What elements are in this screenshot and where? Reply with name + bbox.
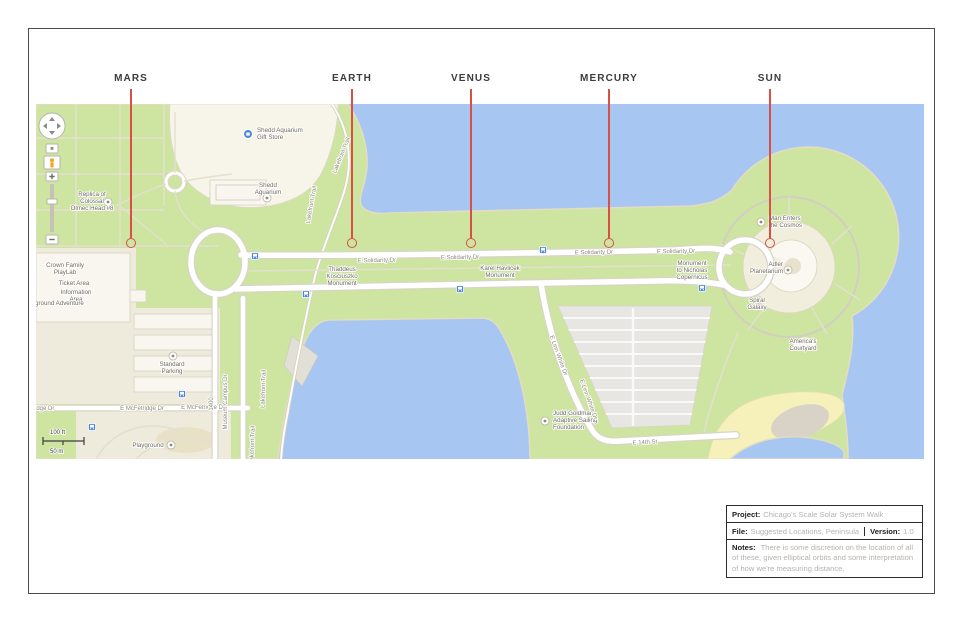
poi-icon <box>757 218 765 226</box>
poi-icon <box>169 352 177 360</box>
map-label: idge Dr <box>36 406 54 412</box>
map-label: Playground <box>132 442 164 449</box>
poi-icon <box>541 417 549 425</box>
file-version-row: File: Suggested Locations, Peninsula Ver… <box>727 523 922 540</box>
map-label: Ticket Area <box>59 280 90 287</box>
notes-row: Notes: There is some discretion on the l… <box>727 540 922 577</box>
project-label: Project: <box>732 510 760 519</box>
notes-label: Notes: <box>732 543 756 552</box>
title-block: Project: Chicago's Scale Solar System Wa… <box>726 505 923 578</box>
bus-stop-icon <box>699 285 706 292</box>
bus-stop-icon <box>540 247 547 254</box>
map-label: SpiralGalaxy <box>747 297 767 311</box>
map-label: 1400 <box>209 397 215 411</box>
bus-stop-icon <box>89 424 96 431</box>
map-label: E McFetridge Dr <box>181 405 225 411</box>
pan-control[interactable] <box>39 113 65 139</box>
pegman-icon[interactable] <box>50 158 54 167</box>
poi-icon <box>167 441 175 449</box>
file-value: Suggested Locations, Peninsula <box>751 527 860 536</box>
map-label: E Solidarity Dr <box>657 249 695 256</box>
project-value: Chicago's Scale Solar System Walk <box>763 510 883 519</box>
bus-stop-icon <box>457 286 464 293</box>
map-label: E Solidarity Dr <box>575 250 613 257</box>
map-label: Karel HavlicekMonument <box>480 265 520 279</box>
map-screenshot: 100 ft 50 m Shedd AquariumGift StoreShed… <box>36 104 924 459</box>
scale-ft-label: 100 ft <box>50 430 65 436</box>
map-label: America'sCourtyard <box>789 338 817 352</box>
version-cell: Version: 1.0 <box>864 527 936 536</box>
zoom-slider-handle[interactable] <box>47 199 57 204</box>
bus-stop-icon <box>252 253 259 260</box>
notes-value: There is some discretion on the location… <box>732 543 913 573</box>
scale-m-label: 50 m <box>50 449 63 455</box>
map-label: ThaddeusKosciuszkoMonument <box>326 266 358 287</box>
map-label: StandardParking <box>159 361 185 375</box>
map-label: Monumentto NicholasCopernicus <box>676 260 707 281</box>
project-row: Project: Chicago's Scale Solar System Wa… <box>727 506 922 523</box>
map-label: Lakefront Trail <box>249 426 256 459</box>
map-label: E Solidarity Dr <box>358 258 396 265</box>
map-canvas[interactable]: 100 ft 50 m Shedd AquariumGift StoreShed… <box>36 104 924 459</box>
map-label: E McFetridge Dr <box>120 406 164 412</box>
bus-stop-icon <box>179 391 186 398</box>
version-value: 1.0 <box>903 527 914 536</box>
map-label: Museum Campus Dr <box>223 374 229 429</box>
file-label: File: <box>732 527 748 536</box>
map-label: Man Entersthe Cosmos <box>769 215 802 229</box>
map-label: ground Adventure <box>36 300 84 307</box>
bus-stop-icon <box>303 291 310 298</box>
map-label: E Solidarity Dr <box>441 255 479 262</box>
gift-store-icon <box>244 130 253 139</box>
poi-icon <box>784 266 792 274</box>
version-label: Version: <box>870 527 900 536</box>
